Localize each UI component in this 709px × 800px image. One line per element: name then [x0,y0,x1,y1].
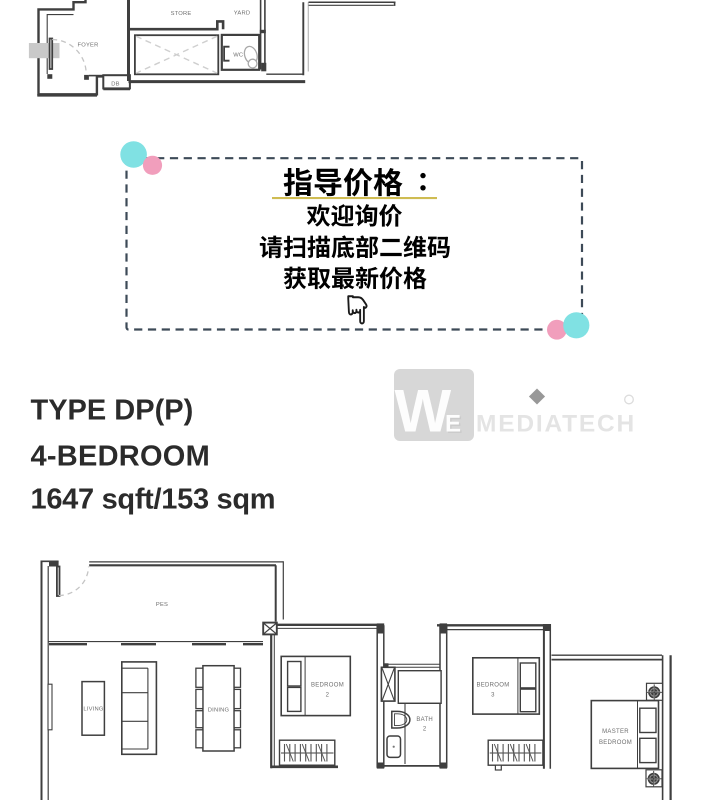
svg-text:3: 3 [491,693,495,699]
svg-text:BEDROOM: BEDROOM [599,740,632,746]
svg-text:E: E [445,411,461,438]
svg-text:STORE: STORE [171,11,192,17]
svg-text:2: 2 [326,693,330,699]
svg-text:FOYER: FOYER [78,42,99,48]
svg-text:DINING: DINING [208,708,230,714]
svg-text:PES: PES [156,602,168,608]
svg-text:YARD: YARD [234,10,250,16]
svg-text:TYPE DP(P): TYPE DP(P) [31,395,194,427]
svg-text:DB: DB [111,81,119,87]
svg-text:MASTER: MASTER [602,729,629,735]
svg-text:W: W [395,378,452,445]
svg-text:MEDIATECH: MEDIATECH [476,411,636,438]
svg-text:2: 2 [423,727,427,733]
svg-text:BATH: BATH [416,717,433,723]
svg-text:1647 sqft/153 sqm: 1647 sqft/153 sqm [31,484,276,516]
svg-text:4-BEDROOM: 4-BEDROOM [31,441,210,473]
svg-text:LIVING: LIVING [83,707,103,713]
svg-text:BEDROOM: BEDROOM [476,683,509,689]
svg-text:BEDROOM: BEDROOM [311,683,344,689]
svg-text:WC: WC [233,52,243,58]
